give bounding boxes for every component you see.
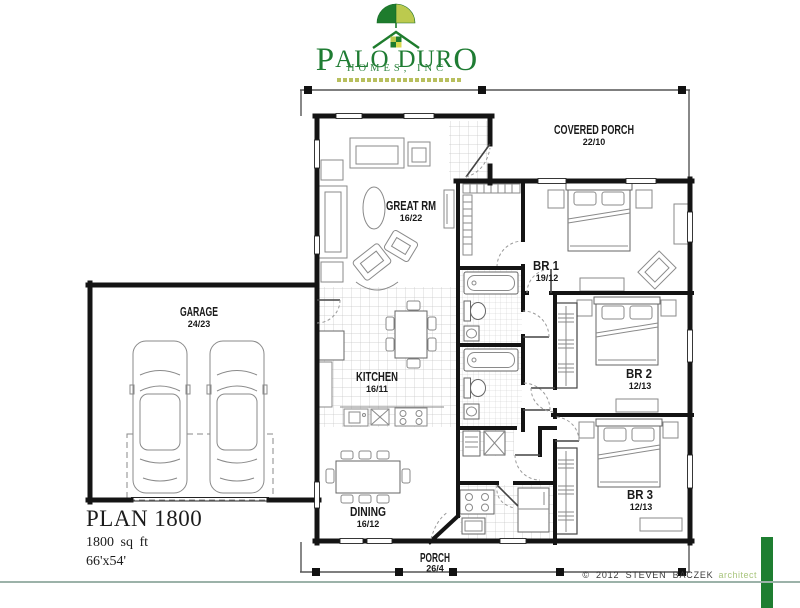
kitchen-table	[395, 311, 427, 358]
tall-dresser	[674, 204, 688, 244]
bathtub	[464, 349, 518, 371]
room-garage	[127, 341, 273, 500]
washer	[463, 431, 480, 456]
nightstand	[577, 300, 592, 316]
plan-footprint: 66'x54'	[86, 554, 202, 570]
dims-br2: 12/13	[629, 381, 652, 391]
car-1	[130, 341, 190, 493]
corner-chair	[638, 251, 676, 289]
toilet	[464, 301, 486, 321]
dims-br1: 19/12	[536, 273, 559, 283]
coffee-table	[363, 187, 385, 229]
dims-covered-porch: 22/10	[583, 137, 606, 147]
bed-br3	[596, 419, 662, 487]
label-br3: BR 3	[627, 488, 653, 502]
dims-br3: 12/13	[630, 502, 653, 512]
nightstand	[636, 190, 652, 208]
bathtub	[464, 272, 518, 294]
dims-kitchen: 16/11	[366, 384, 388, 394]
copyright-text: © 2012 STEVEN BACZEK	[582, 570, 713, 580]
dining-table	[336, 461, 400, 493]
label-br2: BR 2	[626, 367, 652, 381]
range	[460, 490, 494, 514]
sofa-2	[319, 186, 347, 258]
dresser	[616, 399, 658, 412]
footer-rule	[0, 581, 800, 583]
side-table	[321, 160, 343, 180]
copyright: © 2012 STEVEN BACZEKarchitect	[0, 570, 757, 580]
closet-shelf	[463, 195, 472, 255]
dresser	[580, 278, 624, 291]
accent-bar	[761, 537, 773, 608]
label-br1: BR 1	[533, 259, 559, 273]
nightstand	[548, 190, 564, 208]
dining-furniture	[326, 451, 410, 503]
architect-credit: architect	[718, 570, 757, 580]
tv-cabinet	[444, 190, 454, 228]
plan-area: 1800 sq ft	[86, 535, 202, 551]
dims-garage: 24/23	[188, 319, 211, 329]
nightstand	[579, 422, 594, 438]
plan-title: PLAN 1800	[86, 506, 202, 532]
dims-great-rm: 16/22	[400, 213, 423, 223]
nightstand	[663, 422, 678, 438]
label-kitchen: KITCHEN	[356, 370, 398, 384]
counter	[319, 362, 332, 407]
dresser	[640, 518, 682, 531]
label-covered-porch: COVERED PORCH	[554, 123, 634, 137]
side-table	[321, 262, 343, 282]
label-garage: GARAGE	[180, 305, 218, 319]
plan-info: PLAN 1800 1800 sq ft 66'x54'	[86, 506, 202, 570]
label-dining: DINING	[350, 505, 386, 519]
car-2	[207, 341, 267, 493]
floor-plan-sheet: PALODURO HOMES, INC	[0, 0, 800, 608]
bed-br1	[566, 183, 632, 251]
toilet	[464, 378, 486, 398]
fridge	[319, 331, 344, 360]
label-great-rm: GREAT RM	[386, 199, 436, 213]
bed-br2	[594, 297, 660, 365]
nightstand	[661, 300, 676, 316]
dims-dining: 16/12	[357, 519, 380, 529]
cooktop	[395, 408, 427, 426]
